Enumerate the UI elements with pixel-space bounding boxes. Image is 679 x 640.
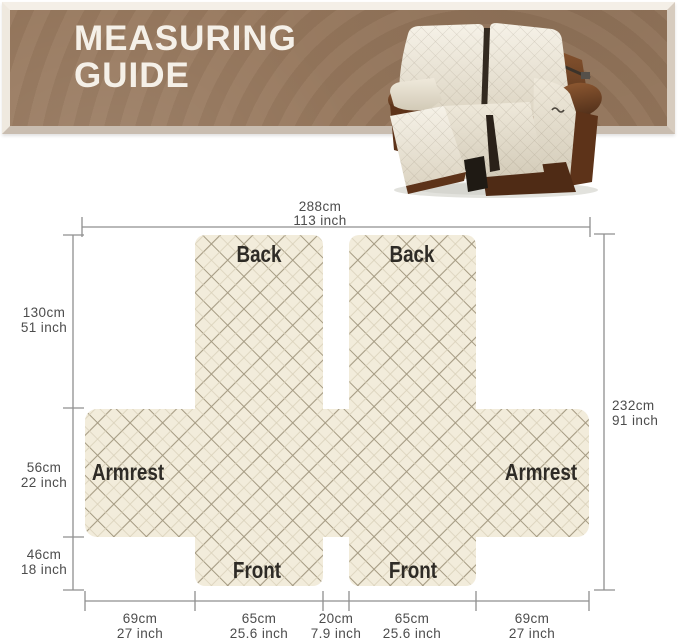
dim-right-inch: 91 inch	[612, 413, 658, 428]
dim-bottom-5-cm: 69cm	[515, 611, 550, 626]
dim-left-middle-inch: 22 inch	[21, 475, 67, 490]
recliner-sofa-image	[386, 20, 604, 200]
dim-left-upper-cm: 130cm	[23, 305, 66, 320]
dim-right-cm: 232cm	[612, 398, 655, 413]
dim-top-inch: 113 inch	[293, 213, 346, 228]
dim-left-lower-cm: 46cm	[27, 547, 62, 562]
dim-bottom-3-inch: 7.9 inch	[311, 626, 361, 640]
back-left-label: Back	[236, 242, 281, 267]
dim-left-upper-inch: 51 inch	[21, 320, 67, 335]
sofa-body	[388, 23, 604, 196]
sofa-mechanism	[464, 156, 488, 192]
sofa-strap-buckle	[581, 72, 590, 79]
dim-bottom-4-inch: 25.6 inch	[383, 626, 441, 640]
sofa-left-arm-cover	[390, 78, 442, 110]
back-right-label: Back	[389, 242, 434, 267]
cover-shape	[85, 235, 589, 586]
dim-bottom-2-inch: 25.6 inch	[230, 626, 288, 640]
front-left-label: Front	[233, 558, 281, 583]
dim-bottom-2-cm: 65cm	[242, 611, 277, 626]
dim-bottom-4-cm: 65cm	[395, 611, 430, 626]
dim-bottom-5-inch: 27 inch	[509, 626, 555, 640]
dimension-line-bottom	[85, 591, 589, 611]
dim-top-cm: 288cm	[299, 199, 342, 214]
dim-bottom-3-cm: 20cm	[319, 611, 354, 626]
dimension-line-left	[63, 235, 84, 590]
dim-bottom-1-inch: 27 inch	[117, 626, 163, 640]
armrest-right-label: Armrest	[505, 460, 577, 485]
dim-left-lower-inch: 18 inch	[21, 562, 67, 577]
front-right-label: Front	[389, 558, 437, 583]
armrest-left-label: Armrest	[92, 460, 164, 485]
dim-left-middle-cm: 56cm	[27, 460, 62, 475]
dim-bottom-1-cm: 69cm	[123, 611, 158, 626]
